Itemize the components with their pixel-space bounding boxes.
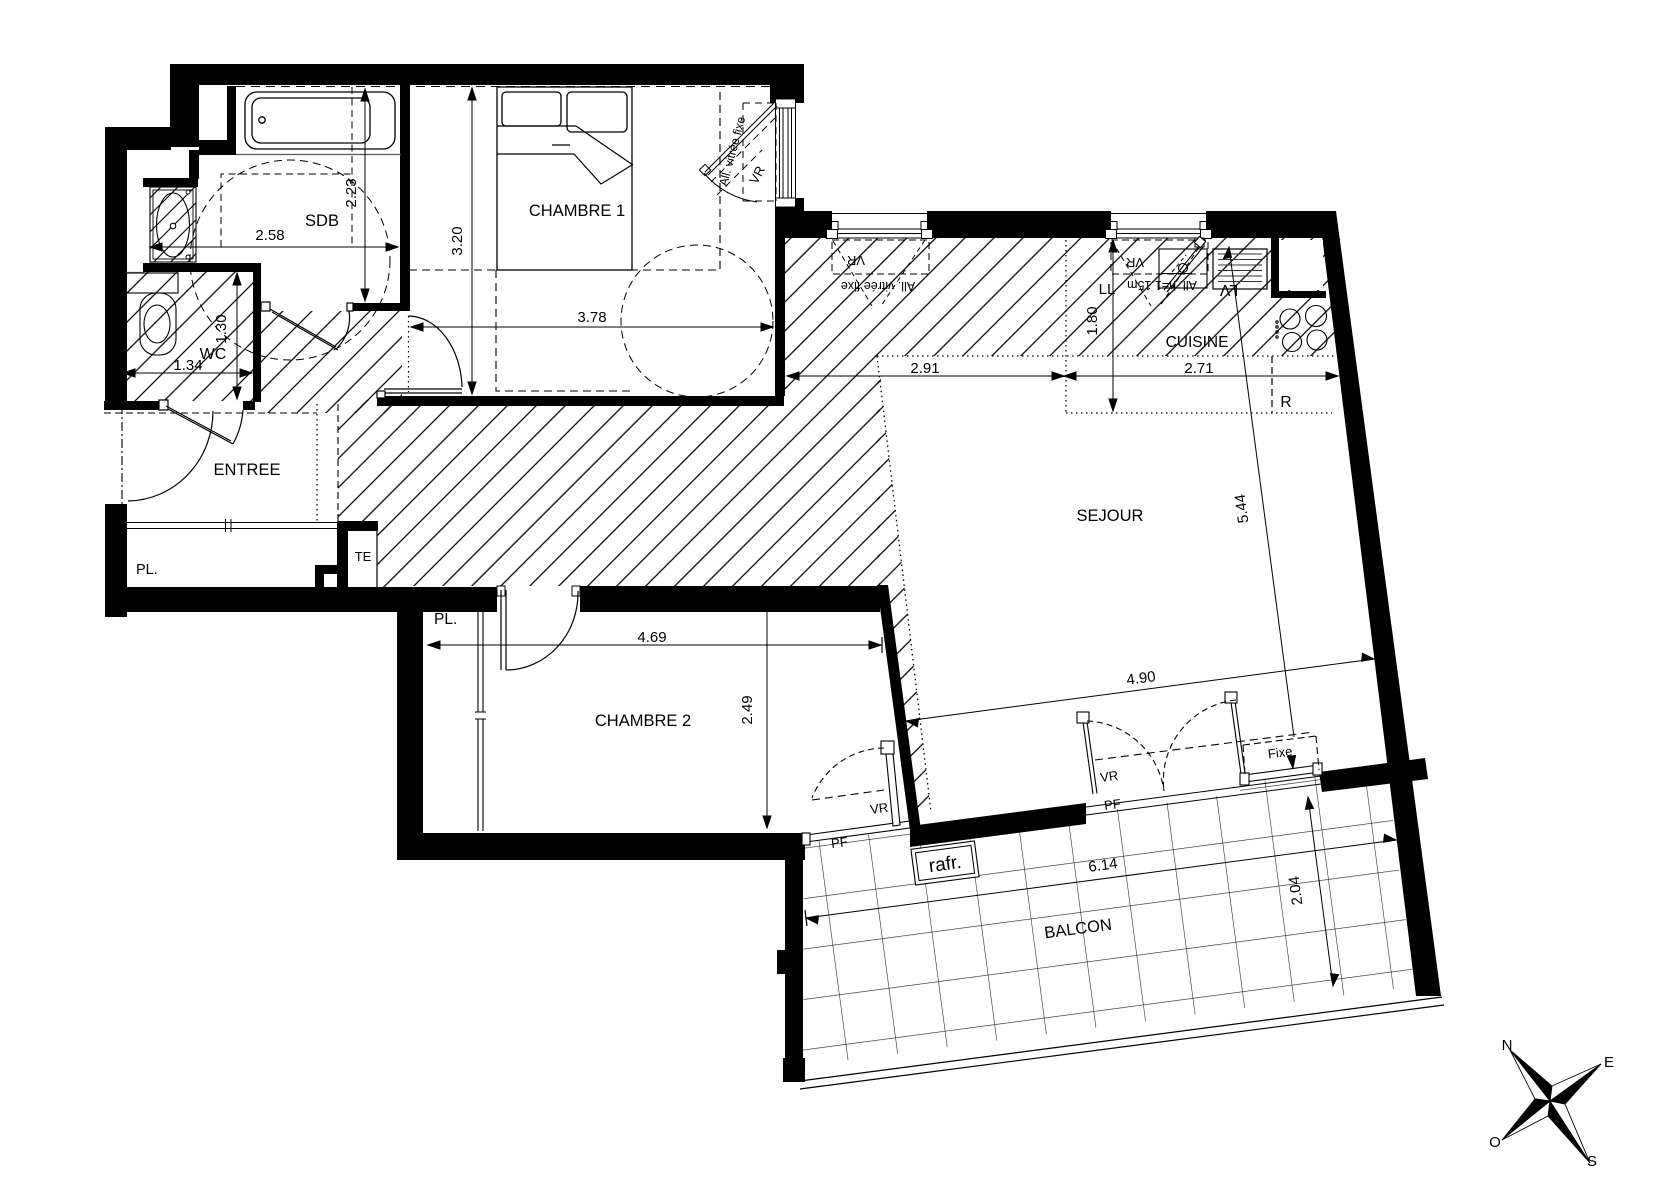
svg-text:1.30: 1.30 bbox=[213, 314, 230, 343]
svg-text:CUISINE: CUISINE bbox=[1166, 334, 1229, 351]
svg-text:rafr.: rafr. bbox=[928, 852, 963, 877]
svg-text:E: E bbox=[1604, 1054, 1614, 1071]
svg-text:3.20: 3.20 bbox=[449, 226, 466, 255]
svg-text:PF: PF bbox=[830, 834, 848, 851]
svg-text:LL: LL bbox=[1099, 281, 1116, 298]
svg-text:VR: VR bbox=[1126, 255, 1144, 270]
svg-text:O: O bbox=[1489, 1134, 1501, 1151]
svg-text:VR: VR bbox=[1099, 768, 1119, 785]
svg-text:SEJOUR: SEJOUR bbox=[1077, 507, 1144, 525]
svg-text:PL.: PL. bbox=[434, 611, 457, 628]
svg-text:2.71: 2.71 bbox=[1184, 360, 1213, 377]
svg-text:VR: VR bbox=[869, 800, 889, 817]
svg-text:3.78: 3.78 bbox=[577, 309, 606, 326]
svg-text:PF: PF bbox=[1103, 796, 1121, 813]
svg-text:S: S bbox=[1587, 1153, 1597, 1170]
svg-text:2.91: 2.91 bbox=[910, 360, 939, 377]
svg-text:4.69: 4.69 bbox=[637, 629, 666, 646]
svg-text:Fixe: Fixe bbox=[1267, 743, 1293, 761]
svg-text:LV: LV bbox=[1219, 281, 1238, 298]
svg-text:All. vitrée fixe: All. vitrée fixe bbox=[841, 279, 915, 293]
svg-text:SDB: SDB bbox=[305, 212, 339, 230]
svg-text:CHAMBRE 2: CHAMBRE 2 bbox=[595, 712, 691, 730]
svg-text:PL.: PL. bbox=[136, 562, 158, 578]
svg-text:TE: TE bbox=[355, 549, 372, 564]
svg-text:2.23: 2.23 bbox=[343, 178, 360, 207]
svg-text:CHAMBRE 1: CHAMBRE 1 bbox=[529, 202, 625, 220]
svg-text:R: R bbox=[1280, 394, 1291, 411]
svg-text:2.49: 2.49 bbox=[739, 695, 756, 724]
svg-text:N: N bbox=[1502, 1037, 1513, 1054]
svg-text:All. h=1.15m: All. h=1.15m bbox=[1127, 278, 1197, 292]
svg-text:WC: WC bbox=[200, 346, 227, 363]
svg-text:ENTREE: ENTREE bbox=[214, 461, 281, 479]
svg-text:VR: VR bbox=[847, 253, 865, 268]
svg-text:1.80: 1.80 bbox=[1084, 306, 1101, 335]
svg-text:1.34: 1.34 bbox=[173, 357, 202, 374]
svg-text:2.58: 2.58 bbox=[255, 227, 284, 244]
